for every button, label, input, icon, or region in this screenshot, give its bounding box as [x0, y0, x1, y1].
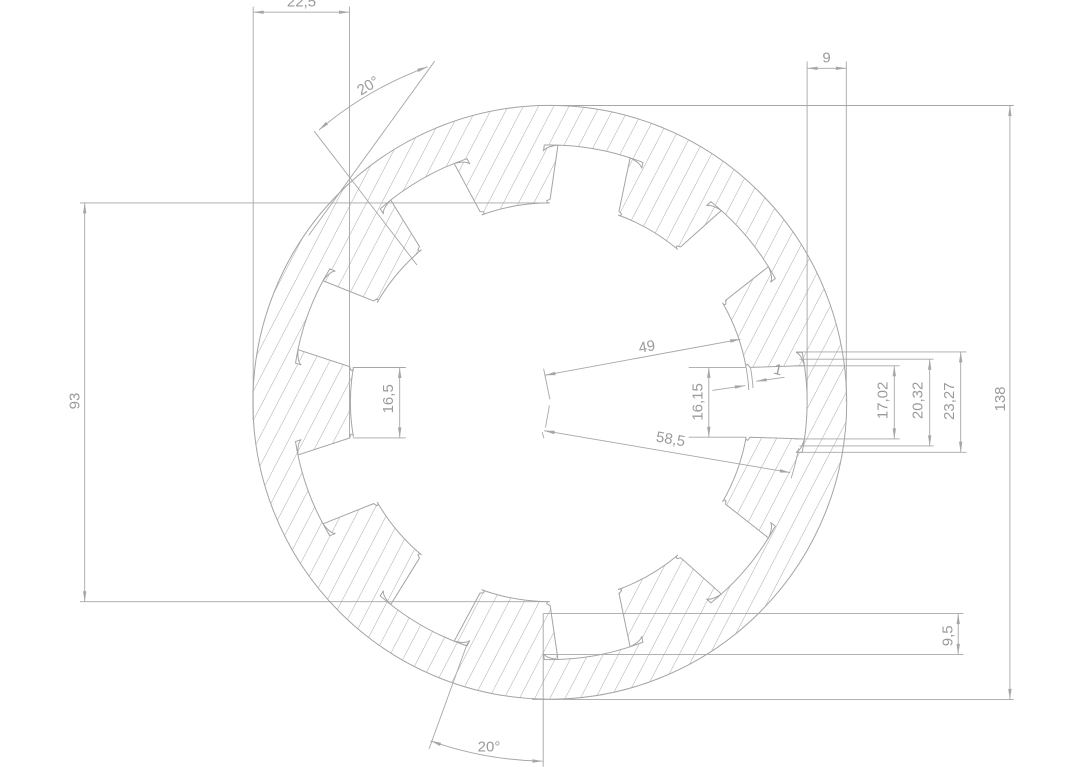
svg-text:9,5: 9,5 — [940, 625, 957, 646]
svg-text:138: 138 — [992, 386, 1009, 411]
svg-text:20,32: 20,32 — [909, 382, 926, 420]
svg-text:17,02: 17,02 — [874, 382, 891, 420]
svg-text:22,5: 22,5 — [287, 0, 316, 10]
svg-text:16,15: 16,15 — [689, 383, 706, 421]
svg-text:93: 93 — [66, 393, 83, 410]
svg-text:23,27: 23,27 — [941, 382, 958, 420]
svg-text:16,5: 16,5 — [380, 384, 397, 413]
svg-text:9: 9 — [822, 49, 830, 66]
svg-text:20°: 20° — [478, 738, 501, 755]
svg-text:49: 49 — [637, 337, 656, 357]
